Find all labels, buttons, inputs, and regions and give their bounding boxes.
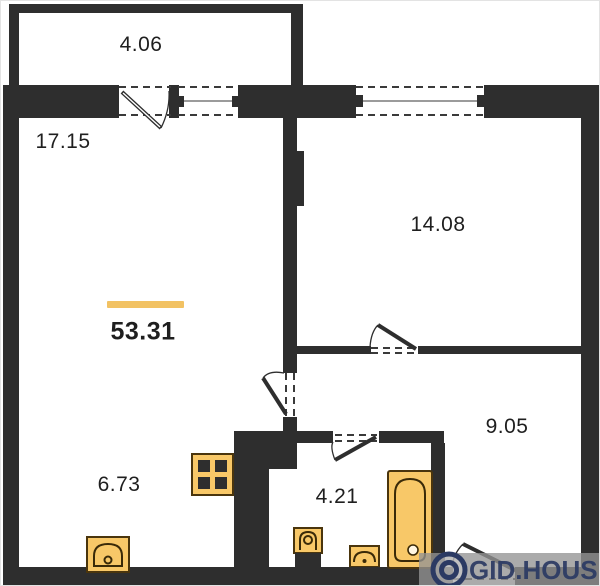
- watermark-logo-icon: [429, 550, 469, 586]
- stove-icon: [191, 453, 234, 496]
- room-area-living: 17.15: [35, 130, 90, 154]
- toilet-icon: [293, 527, 323, 571]
- room-area-bedroom: 14.08: [410, 213, 465, 237]
- bedroom-door-opening: [371, 348, 418, 353]
- room-area-bathroom: 4.21: [316, 485, 359, 509]
- washbasin-icon: [349, 545, 380, 575]
- bedroom-door-arc: [370, 325, 378, 347]
- balcony-door-arc: [161, 91, 169, 128]
- room-area-hallway: 9.05: [486, 415, 529, 439]
- hall-door-opening: [286, 373, 294, 417]
- hall-door-leaf: [263, 378, 286, 414]
- room-area-balcony: 4.06: [120, 33, 163, 57]
- room-area-kitchen: 6.73: [98, 473, 141, 497]
- balcony-door-leaf-inner: [123, 93, 160, 127]
- doors-windows-layer: [1, 1, 600, 586]
- bathroom-door-arc: [332, 442, 335, 460]
- total-area-label: 53.31: [110, 318, 175, 347]
- watermark-text: GID.HOUSE: [469, 555, 600, 586]
- bedroom-door-leaf: [378, 325, 416, 349]
- total-area-accent-bar: [107, 301, 184, 308]
- hall-door-arc: [263, 372, 284, 378]
- watermark: GID.HOUSE: [419, 553, 600, 586]
- kitchen-sink-icon: [86, 536, 130, 573]
- floor-plan: GID.HOUSE 4.06 17.15 14.08 9.05 6.73 4.2…: [0, 0, 600, 586]
